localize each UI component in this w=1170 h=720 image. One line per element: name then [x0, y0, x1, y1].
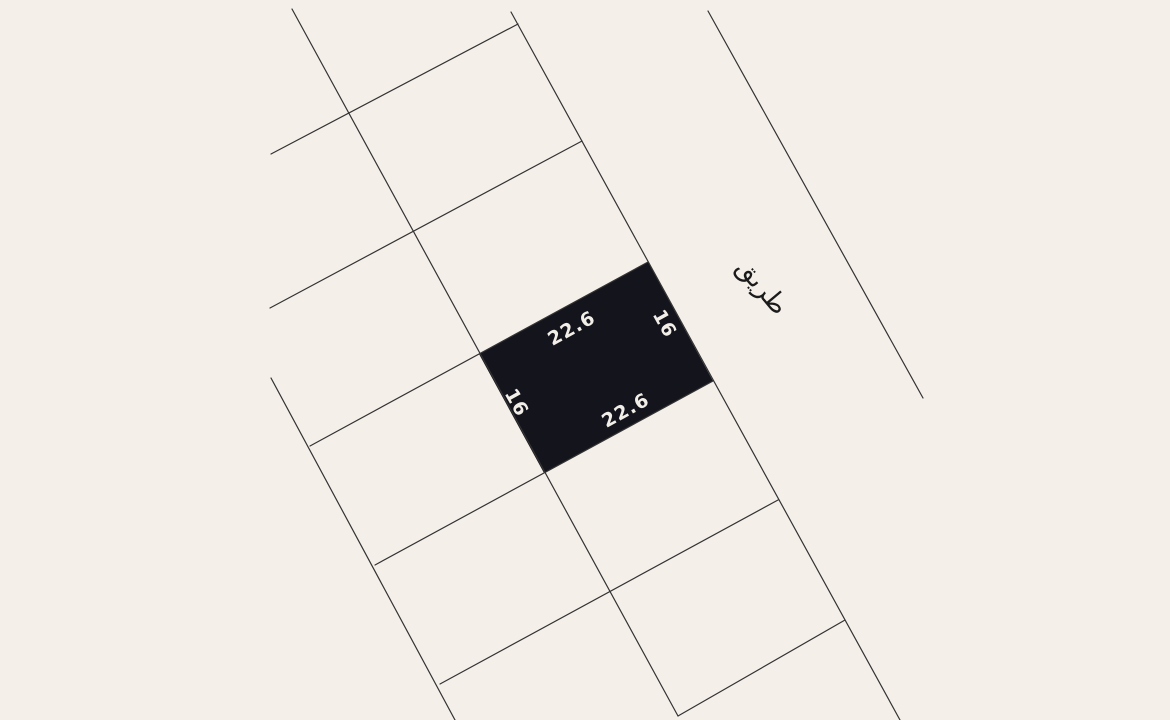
plot-map: 22.6 16 22.6 16 طريق [0, 0, 1170, 720]
parcel-grid-svg [0, 0, 1170, 720]
